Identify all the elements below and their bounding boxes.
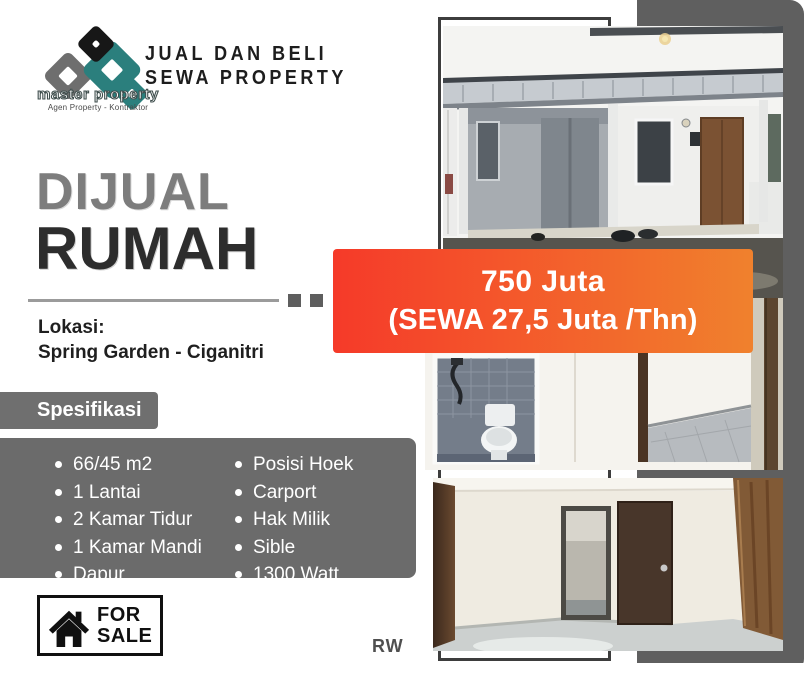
price-main: 750 Juta (481, 263, 605, 301)
spec-item: 2 Kamar Tidur (55, 506, 202, 534)
flyer-canvas: 750 Juta (SEWA 27,5 Juta /Thn) master pr… (0, 0, 804, 673)
spec-item: 1300 Watt (235, 561, 353, 589)
spec-item: 1 Kamar Mandi (55, 534, 202, 562)
title-rumah: RUMAH (35, 219, 258, 279)
title-dijual: DIJUAL (36, 166, 230, 218)
logo-tagline: Agen Property - Kontraktor (30, 103, 166, 112)
brand-header-line2: SEWA PROPERTY (145, 64, 347, 91)
spec-item: Sible (235, 534, 353, 562)
for-sale-text: FOR SALE (97, 605, 152, 647)
decorative-square-2 (310, 294, 323, 307)
spec-list-box: 66/45 m2 1 Lantai 2 Kamar Tidur 1 Kamar … (0, 438, 416, 578)
spec-list-left: 66/45 m2 1 Lantai 2 Kamar Tidur 1 Kamar … (55, 451, 202, 589)
spec-heading: Spesifikasi (0, 392, 158, 429)
price-banner: 750 Juta (SEWA 27,5 Juta /Thn) (333, 249, 753, 353)
brand-logo: master property Agen Property - Kontrakt… (38, 26, 158, 120)
spec-item: 1 Lantai (55, 479, 202, 507)
watermark-initials: RW (372, 636, 404, 657)
spec-item: 66/45 m2 (55, 451, 202, 479)
location-label: Lokasi: (38, 315, 264, 340)
spec-list-right: Posisi Hoek Carport Hak Milik Sible 1300… (235, 451, 353, 589)
location-value: Spring Garden - Ciganitri (38, 340, 264, 365)
decorative-square-1 (288, 294, 301, 307)
photo-interior-room (433, 478, 783, 651)
spec-item: Hak Milik (235, 506, 353, 534)
spec-item: Posisi Hoek (235, 451, 353, 479)
brand-header: JUAL DAN BELI SEWA PROPERTY (145, 40, 347, 88)
for-sale-badge: FOR SALE (37, 595, 163, 656)
title-divider-line (28, 299, 279, 302)
spec-item: Carport (235, 479, 353, 507)
location-block: Lokasi: Spring Garden - Ciganitri (38, 315, 264, 365)
house-icon (46, 604, 92, 648)
brand-header-line1: JUAL DAN BELI (145, 40, 347, 67)
price-rent: (SEWA 27,5 Juta /Thn) (388, 301, 697, 339)
spec-item: Dapur (55, 561, 202, 589)
